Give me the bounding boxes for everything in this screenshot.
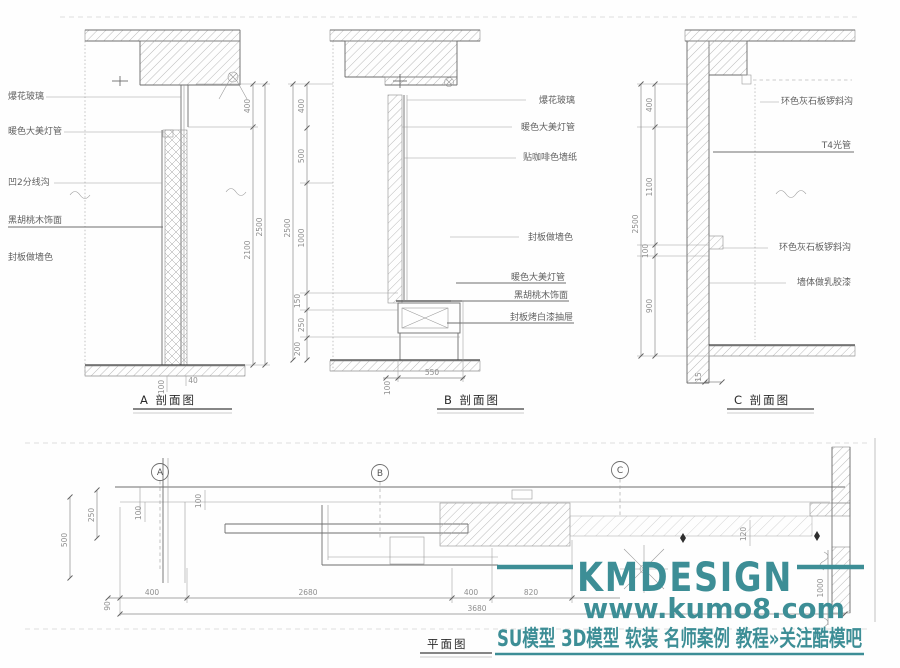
watermark: KMDESIGN www.kumo8.com SU模型 3D模型 软装 名师案例…	[495, 555, 864, 654]
a-ceiling-slab	[85, 30, 240, 41]
b-dim-b100: 100	[383, 381, 392, 396]
b-dim-500: 500	[297, 149, 306, 164]
plan-title-block: 平面图	[420, 637, 492, 657]
plan-dim-820: 820	[524, 588, 539, 597]
b-label-glass: 爆花玻璃	[539, 94, 575, 106]
plan-title: 平面图	[427, 637, 468, 651]
a-dim-b40: 40	[188, 376, 198, 385]
b-dim-1000: 1000	[297, 228, 306, 247]
c-floor	[683, 345, 855, 356]
c-dim-900: 900	[645, 299, 654, 314]
b-dim-total: 2500	[283, 218, 292, 237]
c-wall-block	[709, 236, 723, 249]
c-label-t4: T4光管	[821, 139, 851, 151]
a-dim-400: 400	[243, 99, 252, 114]
plan-table	[390, 537, 424, 564]
plan-marker-b: B	[377, 469, 383, 479]
b-cabinet	[396, 301, 462, 360]
c-label-groove-bottom: 环色灰石板锣斜沟	[779, 241, 851, 253]
a-floor	[85, 365, 245, 376]
b-dim-200: 200	[293, 342, 302, 357]
section-a: 爆花玻璃 暖色大美灯管 凹2分线沟 黑胡桃木饰面 封板做墙色 400 2100 …	[8, 30, 270, 413]
a-dim-2100: 2100	[243, 240, 252, 259]
c-dim-400: 400	[645, 98, 654, 113]
plan-view: A B C 250 500 100 100 120	[60, 447, 850, 657]
a-break-marks	[70, 189, 246, 199]
a-label-groove: 凹2分线沟	[8, 176, 50, 188]
c-dimensions: 2500 400 1100 100 900 15	[631, 82, 725, 385]
plan-sill	[512, 490, 532, 499]
a-wood-panel	[162, 130, 187, 365]
cad-sheet: 爆花玻璃 暖色大美灯管 凹2分线沟 黑胡桃木饰面 封板做墙色 400 2100 …	[0, 0, 900, 668]
b-floor	[330, 360, 480, 371]
plan-dim-400b: 400	[464, 588, 479, 597]
plan-dim-90: 90	[103, 601, 112, 611]
b-wall	[388, 95, 407, 303]
a-label-lamp: 暖色大美灯管	[8, 125, 62, 137]
b-material-labels: 爆花玻璃 暖色大美灯管 贴咖啡色墙纸 封板做墙色 暖色大美灯管 黑胡桃木饰面 封…	[402, 94, 577, 323]
a-label-glass: 爆花玻璃	[8, 90, 44, 102]
b-label-drawer: 封板烤白漆抽屉	[510, 311, 573, 323]
plan-feature-wall	[440, 503, 570, 546]
c-dim-1100: 1100	[645, 177, 654, 196]
watermark-tagline: SU模型 3D模型 软装 名师案例 教程»关注酷模吧	[497, 626, 862, 652]
c-wall	[687, 41, 709, 383]
a-material-labels: 爆花玻璃 暖色大美灯管 凹2分线沟 黑胡桃木饰面 封板做墙色	[8, 90, 181, 263]
section-c-title: C 剖面图	[734, 393, 790, 407]
section-b: 爆花玻璃 暖色大美灯管 贴咖啡色墙纸 封板做墙色 暖色大美灯管 黑胡桃木饰面 封…	[283, 30, 577, 413]
section-c: 环色灰石板锣斜沟 T4光管 环色灰石板锣斜沟 墙体做乳胶漆 2500 4	[631, 30, 855, 413]
b-ceiling-slab	[330, 30, 480, 41]
c-break-mark	[776, 191, 806, 198]
b-dim-250: 250	[297, 318, 306, 333]
b-label-wallpaper: 贴咖啡色墙纸	[523, 151, 577, 163]
watermark-url: www.kumo8.com	[583, 592, 845, 625]
b-bulkhead	[345, 41, 457, 85]
a-title-block: A 剖面图	[133, 393, 232, 413]
plan-spark-2	[814, 531, 820, 541]
plan-dim-total: 3680	[467, 604, 486, 613]
c-dim-100: 100	[641, 244, 650, 259]
a-lamp-icon	[112, 76, 128, 86]
b-label-lamp-top: 暖色大美灯管	[521, 121, 575, 133]
c-title-block: C 剖面图	[727, 393, 814, 413]
c-label-latex-paint: 墙体做乳胶漆	[797, 276, 851, 288]
c-material-labels: 环色灰石板锣斜沟 T4光管 环色灰石板锣斜沟 墙体做乳胶漆	[709, 95, 853, 288]
plan-dim-400a: 400	[145, 588, 160, 597]
plan-dim-2680: 2680	[298, 588, 317, 597]
b-label-panel-paint: 封板做墙色	[528, 231, 573, 243]
c-label-groove-top: 环色灰石板锣斜沟	[781, 95, 853, 107]
b-title-block: B 剖面图	[437, 393, 524, 413]
a-glass-panel	[181, 85, 258, 365]
a-dim-b100: 100	[157, 380, 166, 395]
c-ceiling-slab	[685, 30, 855, 41]
c-dim-total: 2500	[631, 214, 640, 233]
a-label-panel-paint: 封板做墙色	[8, 251, 53, 263]
plan-dim-100b: 100	[194, 494, 203, 509]
b-dim-150: 150	[293, 294, 302, 309]
plan-dim-250: 250	[87, 508, 96, 523]
b-dimensions: 2500 400 500 1000 150 250 200 100 550	[283, 82, 466, 396]
b-label-lamp-bottom: 暖色大美灯管	[511, 271, 565, 283]
a-label-walnut: 黑胡桃木饰面	[8, 214, 62, 226]
plan-desk	[225, 524, 468, 533]
a-dim-total: 2500	[255, 217, 264, 236]
b-dim-b550: 550	[425, 368, 440, 377]
plan-dim-120: 120	[739, 527, 748, 542]
plan-marker-c: C	[617, 466, 623, 476]
plan-dim-100a: 100	[134, 506, 143, 521]
c-bulkhead	[709, 41, 852, 84]
b-label-walnut: 黑胡桃木饰面	[514, 289, 568, 301]
c-dim-b15: 15	[694, 372, 703, 382]
plan-marker-a: A	[157, 468, 164, 478]
section-a-title: A 剖面图	[140, 393, 196, 407]
plan-dim-500: 500	[60, 533, 69, 548]
plan-hatched-band	[570, 516, 812, 536]
b-dim-400: 400	[297, 99, 306, 114]
section-b-title: B 剖面图	[444, 393, 500, 407]
